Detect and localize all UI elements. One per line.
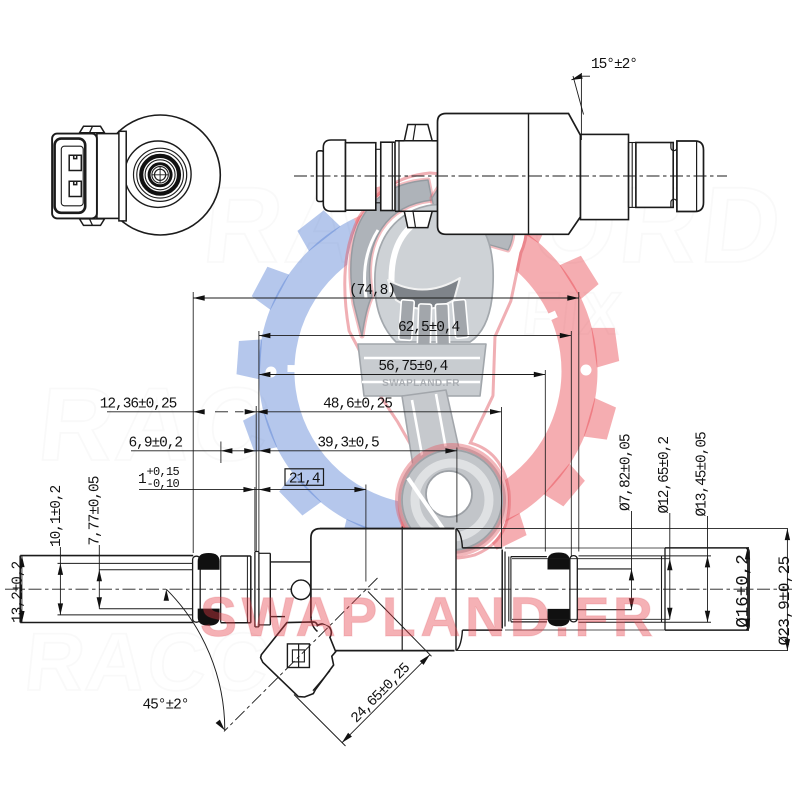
svg-text:(74,8): (74,8) [349, 283, 395, 299]
svg-text:SWAPLAND.FR: SWAPLAND.FR [382, 378, 460, 389]
svg-text:48,6±0,25: 48,6±0,25 [323, 396, 392, 412]
svg-text:SWAPLAND.FR: SWAPLAND.FR [200, 586, 658, 648]
svg-text:Ø7,82±0,05: Ø7,82±0,05 [619, 434, 635, 511]
svg-text:1: 1 [138, 472, 146, 488]
svg-text:12,36±0,25: 12,36±0,25 [100, 396, 177, 412]
svg-text:56,75±0,4: 56,75±0,4 [378, 359, 447, 375]
svg-text:7,77±0,05: 7,77±0,05 [88, 476, 104, 545]
svg-text:39,3±0,5: 39,3±0,5 [317, 435, 379, 451]
svg-text:45°±2°: 45°±2° [143, 698, 189, 714]
svg-text:Ø16±0,2: Ø16±0,2 [734, 554, 754, 628]
svg-text:Ø13,45±0,05: Ø13,45±0,05 [695, 432, 711, 517]
svg-text:6,9±0,2: 6,9±0,2 [129, 435, 183, 451]
svg-text:-0,10: -0,10 [147, 477, 180, 491]
svg-text:Ø23,9±0,25: Ø23,9±0,25 [776, 556, 794, 645]
svg-text:15°±2°: 15°±2° [591, 57, 637, 73]
svg-text:21,4: 21,4 [289, 471, 320, 487]
svg-text:62,5±0,4: 62,5±0,4 [398, 320, 460, 336]
svg-text:Ø12,65±0,2: Ø12,65±0,2 [657, 437, 673, 514]
svg-text:13,2±0,2: 13,2±0,2 [10, 561, 26, 623]
svg-text:10,1±0,2: 10,1±0,2 [49, 485, 65, 547]
